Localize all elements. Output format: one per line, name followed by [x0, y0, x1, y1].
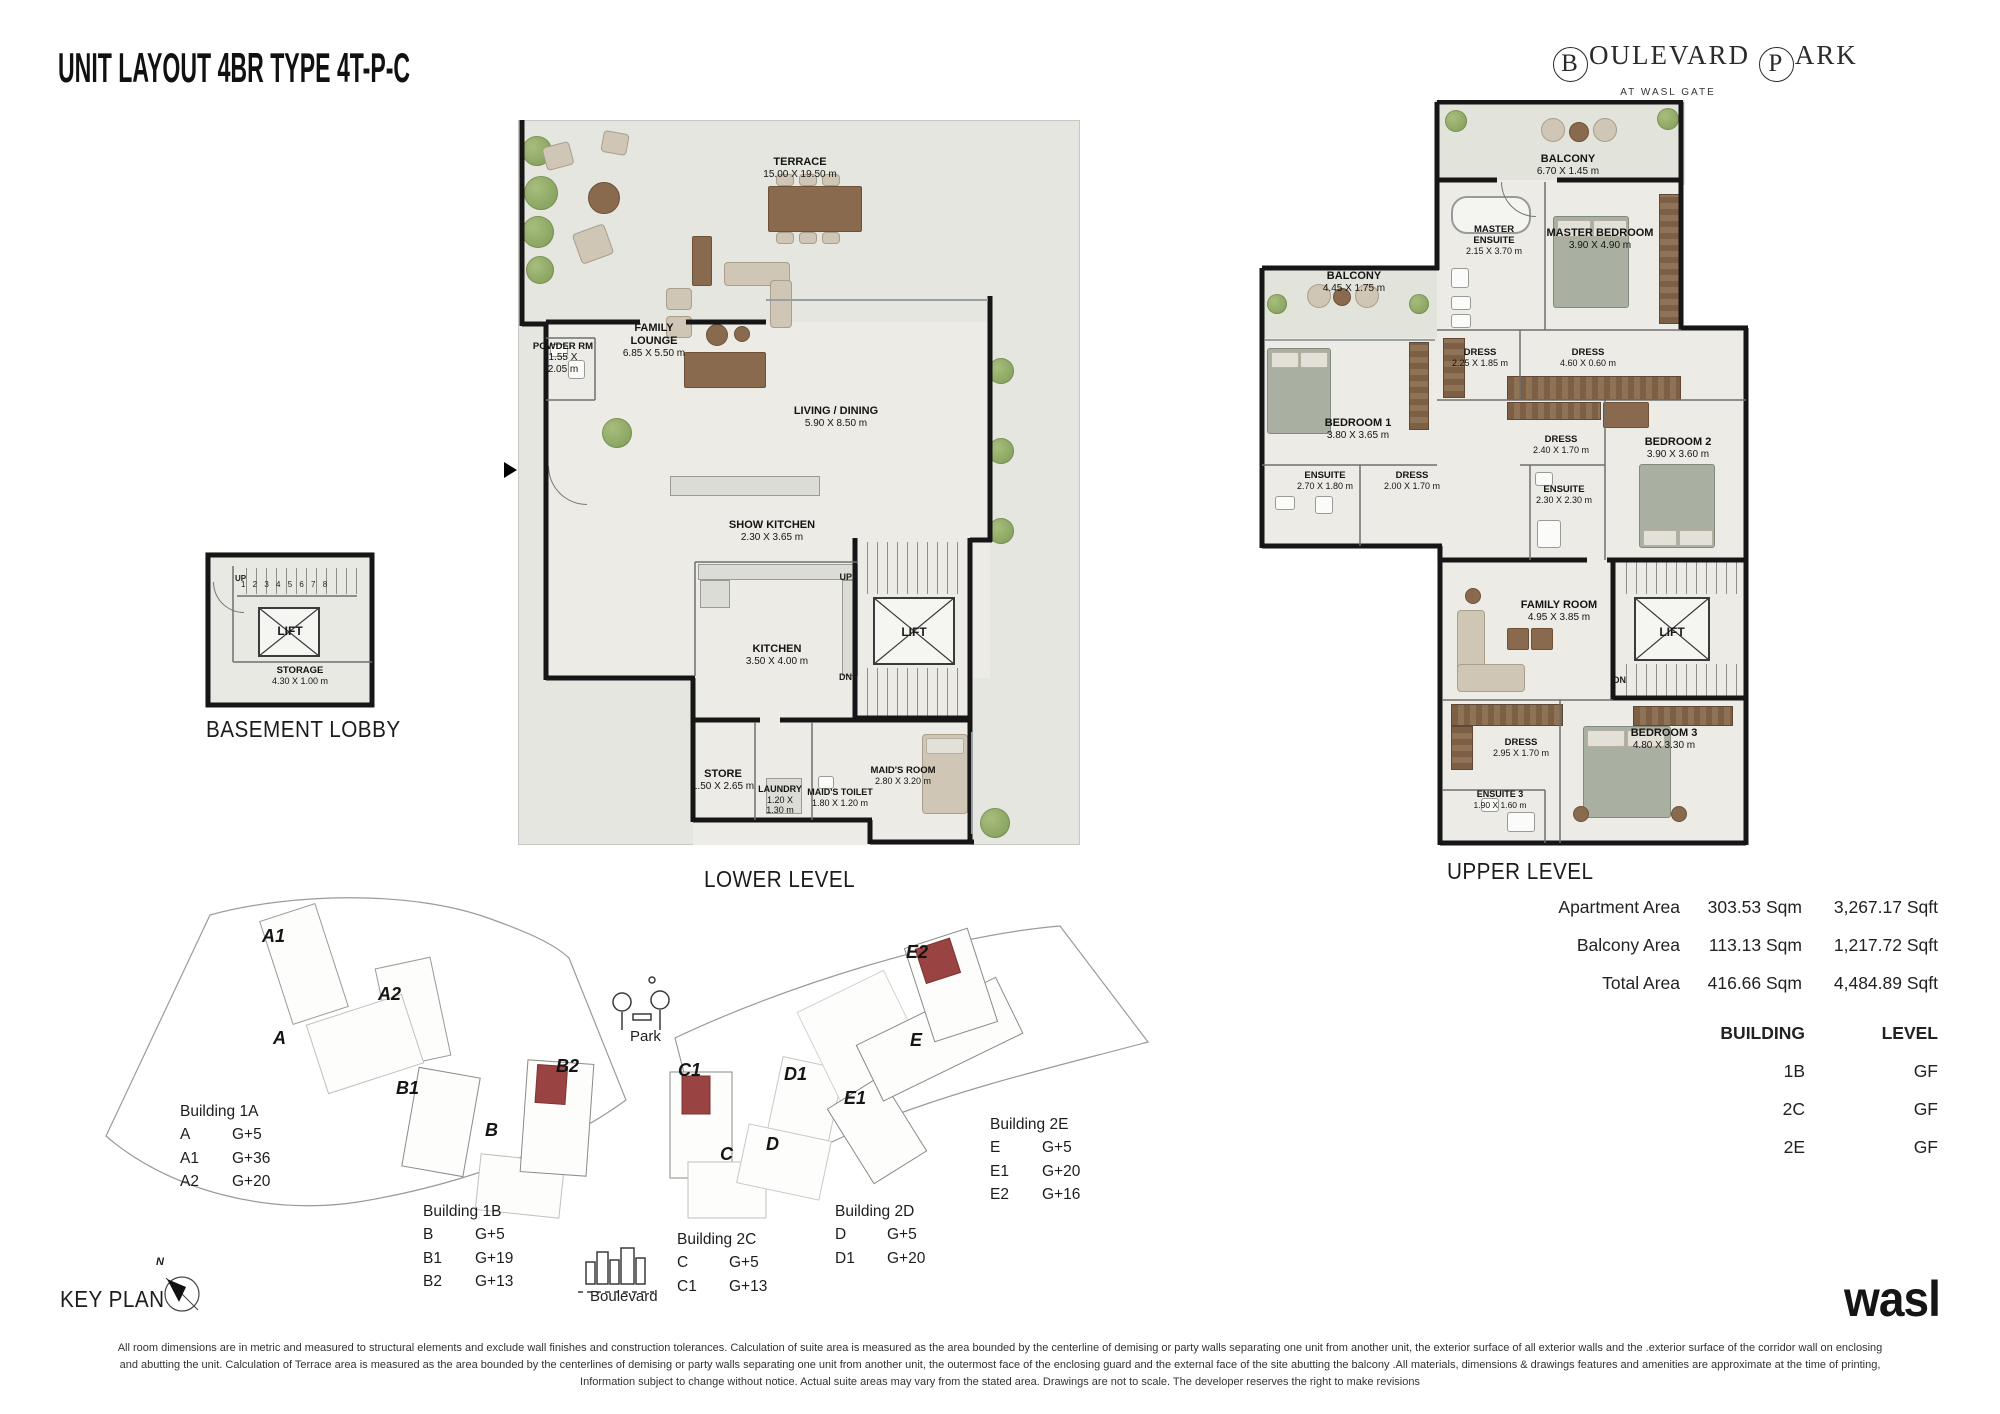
- room-dims: 2.30 X 2.30 m: [1536, 495, 1592, 506]
- room-name: BALCONY: [1327, 270, 1381, 283]
- group-title: Building 2D: [835, 1200, 925, 1223]
- group-row: A2G+20: [180, 1170, 270, 1193]
- building-col-header: BUILDING: [1540, 1023, 1805, 1044]
- room-label-ensuite3: ENSUITE 3 1.90 X 1.60 m: [1474, 789, 1527, 810]
- marker-e2: E2: [906, 942, 928, 963]
- room-dims: 2.25 X 1.85 m: [1452, 358, 1508, 369]
- room-label-master-ensuite: MASTER ENSUITE 2.15 X 3.70 m: [1463, 224, 1525, 257]
- room-label-living-dining: LIVING / DINING 5.90 X 8.50 m: [794, 405, 878, 430]
- building-table-row: 1B GF: [1540, 1052, 1938, 1090]
- room-label-balcony-top: BALCONY 6.70 X 1.45 m: [1537, 153, 1599, 178]
- room-label-laundry: LAUNDRY 1.20 X 1.30 m: [758, 784, 802, 816]
- tower-code: D1: [835, 1247, 887, 1270]
- room-label-bedroom3: BEDROOM 3 4.80 X 3.30 m: [1631, 727, 1698, 752]
- room-dims: 1.50 X 2.65 m: [692, 781, 754, 793]
- keyplan-group-building-1b: Building 1B BG+5 B1G+19 B2G+13: [423, 1200, 513, 1293]
- tower-height: G+5: [729, 1251, 759, 1274]
- tower-code: B1: [423, 1247, 475, 1270]
- room-name: FAMILY LOUNGE: [623, 322, 685, 348]
- room-dims: 3.90 X 4.90 m: [1569, 240, 1631, 252]
- room-label-bedroom2: BEDROOM 2 3.90 X 3.60 m: [1645, 436, 1712, 461]
- room-dims: 6.70 X 1.45 m: [1537, 166, 1599, 178]
- brand-subtitle: AT WASL GATE: [1553, 87, 1783, 98]
- disclaimer-line-2: and abutting the unit. Calculation of Te…: [40, 1357, 1960, 1374]
- skyline-building: [621, 1248, 634, 1284]
- area-sqm: 303.53 Sqm: [1680, 897, 1802, 918]
- area-row: Apartment Area 303.53 Sqm 3,267.17 Sqft: [1540, 888, 1938, 926]
- room-name: DRESS: [1572, 347, 1605, 358]
- room-dims: 2.70 X 1.80 m: [1297, 481, 1353, 492]
- room-label-powder: POWDER RM 1.55 X 2.05 m: [533, 341, 593, 376]
- group-row: D1G+20: [835, 1247, 925, 1270]
- brand-initial-p: P: [1759, 47, 1794, 82]
- group-row: E2G+16: [990, 1183, 1080, 1206]
- room-name: DRESS: [1464, 347, 1497, 358]
- keyplan-group-building-2e: Building 2E EG+5 E1G+20 E2G+16: [990, 1113, 1080, 1206]
- group-row: B2G+13: [423, 1270, 513, 1293]
- tree-crown: [651, 991, 669, 1009]
- room-name: STORAGE: [277, 665, 324, 676]
- room-name: ENSUITE: [1304, 470, 1345, 481]
- upper-level-plan: BALCONY 6.70 X 1.45 m MASTER ENSUITE 2.1…: [1255, 100, 1750, 860]
- room-name: MASTER ENSUITE: [1463, 224, 1525, 246]
- tower-code: C: [677, 1251, 729, 1274]
- room-name: TERRACE: [773, 156, 826, 169]
- marker-e1: E1: [844, 1088, 866, 1109]
- marker-c1: C1: [678, 1060, 701, 1081]
- tower-code: A1: [180, 1147, 232, 1170]
- keyplan-group-building-1a: Building 1A AG+5 A1G+36 A2G+20: [180, 1100, 270, 1193]
- tower-code: A2: [180, 1170, 232, 1193]
- boulevard-label: Boulevard: [590, 1288, 658, 1305]
- area-row: Total Area 416.66 Sqm 4,484.89 Sqft: [1540, 964, 1938, 1002]
- room-name: BEDROOM 2: [1645, 436, 1712, 449]
- basement-lobby-caption: BASEMENT LOBBY: [206, 716, 401, 743]
- tower-height: G+20: [887, 1247, 925, 1270]
- building-a1-footprint: [260, 904, 349, 1025]
- lift-label: LIFT: [1659, 625, 1684, 639]
- brand-word-b: OULEVARD: [1589, 40, 1750, 70]
- area-label: Balcony Area: [1540, 935, 1680, 956]
- brand-initial-b: B: [1553, 47, 1588, 82]
- room-name: MAID'S TOILET: [807, 787, 872, 798]
- group-row: BG+5: [423, 1223, 513, 1246]
- room-label-dress-295: DRESS 2.95 X 1.70 m: [1493, 737, 1549, 759]
- tower-height: G+5: [887, 1223, 917, 1246]
- tower-code: B2: [423, 1270, 475, 1293]
- group-row: EG+5: [990, 1136, 1080, 1159]
- room-label-dress-460: DRESS 4.60 X 0.60 m: [1560, 347, 1616, 369]
- area-sqft: 1,217.72 Sqft: [1802, 935, 1938, 956]
- stairs-up-label: UP: [839, 572, 852, 582]
- brand-wordmark: BOULEVARD PARK: [1553, 40, 1783, 82]
- building-level-table: BUILDING LEVEL 1B GF 2C GF 2E GF: [1540, 1014, 1938, 1166]
- area-row: Balcony Area 113.13 Sqm 1,217.72 Sqft: [1540, 926, 1938, 964]
- marker-b1: B1: [396, 1078, 419, 1099]
- room-name: DRESS: [1505, 737, 1538, 748]
- skyline-building: [597, 1252, 608, 1284]
- room-dims: 4.30 X 1.00 m: [272, 676, 328, 687]
- building-table-row: 2C GF: [1540, 1090, 1938, 1128]
- room-name: BALCONY: [1541, 153, 1595, 166]
- room-label-storage: STORAGE 4.30 X 1.00 m: [272, 665, 328, 687]
- room-dims: 4.95 X 3.85 m: [1528, 612, 1590, 624]
- room-dims: 2.95 X 1.70 m: [1493, 748, 1549, 759]
- room-name: DRESS: [1545, 434, 1578, 445]
- level-cell: GF: [1805, 1137, 1938, 1158]
- tower-height: G+5: [232, 1123, 262, 1146]
- area-table: Apartment Area 303.53 Sqm 3,267.17 Sqft …: [1540, 888, 1938, 1002]
- group-title: Building 2E: [990, 1113, 1080, 1136]
- room-dims: 3.90 X 3.60 m: [1647, 449, 1709, 461]
- room-label-balcony-left: BALCONY 4.45 X 1.75 m: [1323, 270, 1385, 295]
- room-dims: 2.80 X 3.20 m: [875, 776, 931, 787]
- room-name: SHOW KITCHEN: [729, 519, 815, 532]
- room-dims: 2.30 X 3.65 m: [741, 532, 803, 544]
- marker-e: E: [910, 1030, 922, 1051]
- tower-height: G+13: [475, 1270, 513, 1293]
- level-col-header: LEVEL: [1805, 1023, 1938, 1044]
- room-dims: 6.85 X 5.50 m: [623, 348, 685, 360]
- stairs-dn-label: DN: [839, 672, 852, 682]
- tower-height: G+5: [475, 1223, 505, 1246]
- room-name: LIVING / DINING: [794, 405, 878, 418]
- stair-numbers: 1 2 3 4 5 6 7 8: [241, 580, 330, 589]
- room-dims: 4.60 X 0.60 m: [1560, 358, 1616, 369]
- keyplan-group-building-2c: Building 2C CG+5 C1G+13: [677, 1228, 767, 1298]
- north-letter: N: [156, 1256, 164, 1268]
- tree-crown: [613, 993, 631, 1011]
- disclaimer: All room dimensions are in metric and me…: [40, 1340, 1960, 1391]
- tower-code: D: [835, 1223, 887, 1246]
- tower-code: E2: [990, 1183, 1042, 1206]
- wasl-logo: wasl: [1844, 1270, 1940, 1328]
- boulevard-icon: [578, 1248, 654, 1292]
- tower-height: G+36: [232, 1147, 270, 1170]
- upper-level-caption: UPPER LEVEL: [1447, 858, 1593, 885]
- keyplan-group-building-2d: Building 2D DG+5 D1G+20: [835, 1200, 925, 1270]
- tower-height: G+20: [1042, 1160, 1080, 1183]
- brochure-page: UNIT LAYOUT 4BR TYPE 4T-P-C BOULEVARD PA…: [0, 0, 2000, 1414]
- area-sqft: 3,267.17 Sqft: [1802, 897, 1938, 918]
- building-cell: 2E: [1540, 1137, 1805, 1158]
- bench: [633, 1014, 651, 1020]
- lower-level-caption: LOWER LEVEL: [704, 866, 855, 893]
- room-label-terrace: TERRACE 15.00 X 19.50 m: [763, 156, 836, 181]
- room-dims: 1.20 X 1.30 m: [758, 795, 802, 816]
- room-dims: 3.80 X 3.65 m: [1327, 430, 1389, 442]
- group-title: Building 1A: [180, 1100, 270, 1123]
- area-label: Total Area: [1540, 973, 1680, 994]
- brand-logo: BOULEVARD PARK AT WASL GATE: [1553, 40, 1783, 98]
- room-name: STORE: [704, 768, 742, 781]
- room-dims: 5.90 X 8.50 m: [805, 418, 867, 430]
- level-cell: GF: [1805, 1061, 1938, 1082]
- room-name: LAUNDRY: [758, 784, 802, 795]
- marker-d: D: [766, 1134, 779, 1155]
- tower-code: A: [180, 1123, 232, 1146]
- tower-code: E: [990, 1136, 1042, 1159]
- marker-b: B: [485, 1120, 498, 1141]
- tower-height: G+13: [729, 1275, 767, 1298]
- marker-b2: B2: [556, 1056, 579, 1077]
- room-label-master-bedroom: MASTER BEDROOM 3.90 X 4.90 m: [1547, 227, 1654, 252]
- room-label-maids-toilet: MAID'S TOILET 1.80 X 1.20 m: [807, 787, 872, 808]
- marker-a2: A2: [378, 984, 401, 1005]
- room-dims: 15.00 X 19.50 m: [763, 169, 836, 181]
- window-line: [766, 300, 988, 834]
- brand-word-p: ARK: [1795, 40, 1858, 70]
- tower-code: C1: [677, 1275, 729, 1298]
- area-label: Apartment Area: [1540, 897, 1680, 918]
- park-label: Park: [630, 1028, 661, 1045]
- room-name: BEDROOM 3: [1631, 727, 1698, 740]
- room-label-show-kitchen: SHOW KITCHEN 2.30 X 3.65 m: [729, 519, 815, 544]
- skyline-building: [636, 1258, 645, 1284]
- area-sqm: 416.66 Sqm: [1680, 973, 1802, 994]
- lift-label: LIFT: [277, 624, 302, 638]
- basement-lobby-plan: UP 1 2 3 4 5 6 7 8 LIFT STORAGE 4.30 X 1…: [205, 552, 375, 708]
- room-dims: 1.90 X 1.60 m: [1474, 800, 1527, 810]
- tower-code: E1: [990, 1160, 1042, 1183]
- group-row: E1G+20: [990, 1160, 1080, 1183]
- stairs-dn-label: DN: [1613, 675, 1626, 685]
- room-label-family-lounge: FAMILY LOUNGE 6.85 X 5.50 m: [623, 322, 685, 360]
- room-name: BEDROOM 1: [1325, 417, 1392, 430]
- room-name: ENSUITE: [1543, 484, 1584, 495]
- room-label-family-room: FAMILY ROOM 4.95 X 3.85 m: [1521, 599, 1597, 624]
- room-dims: 4.80 X 3.30 m: [1633, 740, 1695, 752]
- disclaimer-line-1: All room dimensions are in metric and me…: [40, 1340, 1960, 1357]
- room-label-maids-room: MAID'S ROOM 2.80 X 3.20 m: [870, 765, 935, 787]
- page-title: UNIT LAYOUT 4BR TYPE 4T-P-C: [58, 44, 410, 92]
- building-table-header: BUILDING LEVEL: [1540, 1014, 1938, 1052]
- room-name: MAID'S ROOM: [870, 765, 935, 776]
- group-row: AG+5: [180, 1123, 270, 1146]
- tower-height: G+16: [1042, 1183, 1080, 1206]
- group-row: A1G+36: [180, 1147, 270, 1170]
- disclaimer-line-3: Information subject to change without no…: [40, 1374, 1960, 1391]
- room-dims: 3.50 X 4.00 m: [746, 656, 808, 668]
- building-cell: 1B: [1540, 1061, 1805, 1082]
- tower-height: G+20: [232, 1170, 270, 1193]
- room-label-kitchen: KITCHEN 3.50 X 4.00 m: [746, 643, 808, 668]
- group-row: CG+5: [677, 1251, 767, 1274]
- room-label-bedroom1: BEDROOM 1 3.80 X 3.65 m: [1325, 417, 1392, 442]
- marker-c: C: [720, 1144, 733, 1165]
- room-dims: 1.80 X 1.20 m: [812, 798, 868, 809]
- room-name: DRESS: [1396, 470, 1429, 481]
- area-sqm: 113.13 Sqm: [1680, 935, 1802, 956]
- room-name: KITCHEN: [753, 643, 802, 656]
- lower-walls: [518, 120, 1080, 845]
- room-name: POWDER RM: [533, 341, 593, 352]
- group-row: DG+5: [835, 1223, 925, 1246]
- wall-segment: [522, 120, 992, 844]
- building-table-row: 2E GF: [1540, 1128, 1938, 1166]
- marker-d1: D1: [784, 1064, 807, 1085]
- room-label-store: STORE 1.50 X 2.65 m: [692, 768, 754, 793]
- lift-label: LIFT: [901, 625, 926, 639]
- room-label-dress-225: DRESS 2.25 X 1.85 m: [1452, 347, 1508, 369]
- room-label-dress-200: DRESS 2.00 X 1.70 m: [1384, 470, 1440, 492]
- room-dims: 2.15 X 3.70 m: [1466, 246, 1522, 257]
- room-label-ensuite1: ENSUITE 2.70 X 1.80 m: [1297, 470, 1353, 492]
- group-row: B1G+19: [423, 1247, 513, 1270]
- skyline-building: [586, 1262, 595, 1284]
- room-dims: 2.00 X 1.70 m: [1384, 481, 1440, 492]
- group-title: Building 1B: [423, 1200, 513, 1223]
- group-title: Building 2C: [677, 1228, 767, 1251]
- room-label-dress-240: DRESS 2.40 X 1.70 m: [1533, 434, 1589, 456]
- park-icon: [613, 977, 669, 1030]
- room-name: FAMILY ROOM: [1521, 599, 1597, 612]
- marker-a: A: [273, 1028, 286, 1049]
- park-marker-dot: [649, 977, 655, 983]
- tower-height: G+19: [475, 1247, 513, 1270]
- entry-arrow-icon: [504, 462, 517, 478]
- tower-code: B: [423, 1223, 475, 1246]
- group-row: C1G+13: [677, 1275, 767, 1298]
- room-name: MASTER BEDROOM: [1547, 227, 1654, 240]
- highlighted-unit-c1: [682, 1076, 710, 1114]
- building-cell: 2C: [1540, 1099, 1805, 1120]
- room-dims: 4.45 X 1.75 m: [1323, 283, 1385, 295]
- room-dims: 2.40 X 1.70 m: [1533, 445, 1589, 456]
- tower-height: G+5: [1042, 1136, 1072, 1159]
- level-cell: GF: [1805, 1099, 1938, 1120]
- skyline-building: [610, 1260, 619, 1284]
- room-name: ENSUITE 3: [1477, 789, 1524, 800]
- room-label-ensuite2: ENSUITE 2.30 X 2.30 m: [1536, 484, 1592, 506]
- room-dims: 1.55 X 2.05 m: [541, 352, 585, 376]
- lower-level-plan: TERRACE 15.00 X 19.50 m FAMILY LOUNGE 6.…: [518, 120, 1080, 845]
- area-sqft: 4,484.89 Sqft: [1802, 973, 1938, 994]
- marker-a1: A1: [262, 926, 285, 947]
